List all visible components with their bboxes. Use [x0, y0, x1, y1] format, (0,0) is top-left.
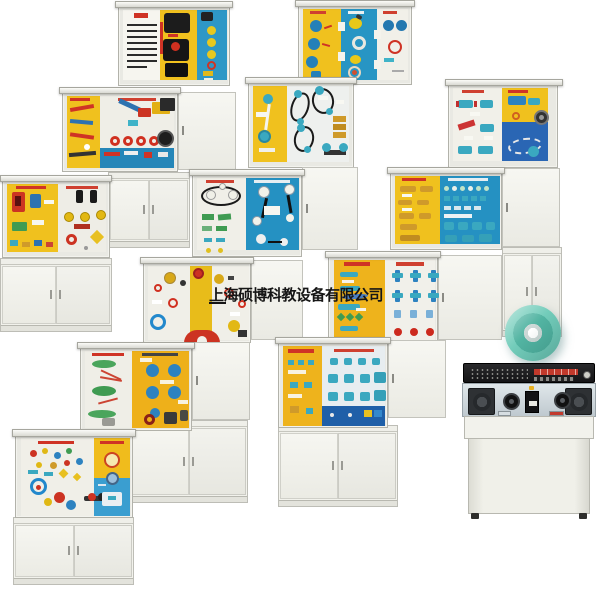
cab-1-sewing-machines-part — [207, 61, 216, 70]
cab-12-springs-cupboard-door-right — [189, 428, 246, 495]
cab-10-valves-part — [392, 293, 403, 298]
cab-12-springs-part — [102, 418, 115, 426]
cab-3-machine-tools-part — [70, 98, 90, 101]
cab-13-mixed-parts-part — [66, 448, 72, 454]
cab-8-pumps-part — [66, 234, 77, 245]
cab-3-machine-tools-part — [138, 108, 151, 117]
cab-11-clamps-cupboard-door-left — [280, 433, 338, 499]
cab-1-sewing-machines-part — [207, 38, 216, 47]
cab-8-pumps-part — [90, 190, 97, 203]
cab-13-mixed-parts-part — [36, 462, 42, 468]
cab-8-pumps-part — [15, 196, 21, 206]
cab-4-belt-drives-part — [333, 116, 346, 122]
cab-5-couplings-part — [480, 124, 494, 132]
cab-13-mixed-parts-cornice — [12, 429, 136, 437]
cab-13-mixed-parts-part — [54, 452, 61, 459]
cab-10-valves-part — [394, 328, 402, 336]
cab-9-gears-part — [238, 330, 247, 337]
cab-11-clamps-part — [330, 358, 338, 365]
cab-6-chain-drives-part — [254, 180, 290, 183]
cab-3-machine-tools-part — [84, 144, 90, 150]
cab-5-couplings-part — [478, 146, 493, 154]
cab-8-pumps-part — [46, 242, 53, 247]
cab-5-couplings-part — [512, 112, 520, 120]
cab-3-machine-tools-part — [158, 152, 168, 157]
cab-13-mixed-parts-part — [64, 460, 70, 466]
cab-7-fasteners-part — [452, 186, 457, 191]
control-panel — [462, 383, 596, 417]
cab-2-cams-part — [383, 11, 397, 14]
cab-8-pumps-part — [34, 240, 42, 246]
cab-13-mixed-parts-part — [54, 492, 65, 503]
cab-1-sewing-machines-part — [165, 63, 188, 77]
cab-11-clamps-part — [306, 408, 313, 414]
cab-11-clamps-part — [344, 358, 352, 365]
rack-knob — [583, 371, 591, 379]
cab-8-pumps-cupboard-handle — [50, 290, 52, 299]
cab-9-gears-part — [230, 312, 240, 316]
cab-3-machine-tools-part — [144, 152, 152, 158]
cab-1-sewing-machines-part — [127, 48, 157, 50]
cab-6-chain-drives-part — [204, 238, 212, 242]
cab-6-chain-drives-cornice — [189, 169, 305, 176]
cab-11-clamps-panel — [283, 346, 322, 426]
cab-9-gears-part — [154, 284, 162, 292]
cab-4-belt-drives-part — [315, 86, 324, 95]
cab-7-fasteners-part — [417, 200, 429, 205]
cab-8-pumps-cupboard-door-left — [2, 266, 56, 324]
console-top-band — [464, 416, 594, 439]
cab-4-belt-drives-part — [294, 90, 302, 98]
cab-12-springs-part — [88, 410, 116, 418]
cab-10-valves-part — [340, 326, 358, 331]
cab-7-fasteners-part — [484, 186, 489, 191]
cab-11-clamps-door-handle — [392, 374, 394, 383]
cab-4-belt-drives-part — [333, 124, 346, 130]
cab-13-mixed-parts-part — [98, 484, 106, 486]
cab-6-chain-drives-door — [302, 167, 358, 250]
cab-4-belt-drives-part — [304, 146, 311, 153]
cab-6-chain-drives-part — [252, 216, 262, 226]
cab-1-sewing-machines-part — [203, 71, 213, 76]
cab-7-fasteners-cornice — [387, 167, 505, 174]
cab-7-fasteners-cupboard-rail — [503, 248, 561, 254]
cab-7-fasteners-part — [444, 196, 450, 201]
cab-2-cams-part — [383, 20, 394, 31]
console-front-panel — [468, 438, 590, 514]
cab-3-machine-tools-cornice — [59, 87, 181, 94]
cab-9-gears-part — [152, 300, 162, 304]
cab-3-machine-tools-door — [178, 92, 236, 170]
cab-7-fasteners-door-handle — [506, 203, 508, 212]
cab-5-couplings-part — [508, 90, 528, 93]
cab-6-chain-drives-part — [218, 248, 223, 253]
cab-12-springs-part — [180, 410, 188, 421]
cab-13-mixed-parts-part — [28, 470, 38, 474]
cab-12-springs-cupboard-door-left — [132, 428, 189, 495]
cab-12-springs-part — [178, 400, 188, 404]
cab-11-clamps-part — [288, 349, 314, 353]
cab-10-valves-part — [426, 310, 433, 318]
cd-shine — [505, 305, 561, 361]
cab-2-cams-part — [306, 56, 318, 68]
cab-5-couplings-part — [528, 146, 539, 157]
cab-5-couplings-cornice — [445, 79, 563, 86]
cab-9-gears-part — [228, 276, 234, 280]
cab-11-clamps-part — [344, 392, 354, 401]
cab-11-clamps-part — [344, 374, 354, 383]
cab-11-clamps-cornice — [275, 337, 391, 344]
cab-11-clamps-part — [348, 413, 352, 417]
cab-10-valves-door-handle — [442, 293, 444, 302]
cab-7-fasteners-part — [444, 214, 472, 218]
cab-7-fasteners-cupboard-handle — [535, 287, 537, 296]
cab-10-valves-part — [342, 280, 354, 283]
cab-11-clamps-cupboard-kick — [279, 500, 397, 506]
cab-11-clamps-part — [288, 360, 294, 365]
left-speaker — [468, 388, 495, 415]
cab-13-mixed-parts-part — [30, 450, 37, 457]
cab-13-mixed-parts-cupboard-handle — [68, 546, 70, 555]
cab-1-sewing-machines-panel — [123, 10, 160, 80]
cab-12-springs-part — [160, 380, 174, 384]
product-montage: 上海硕博科教设备有限公司 — [0, 0, 600, 591]
cab-13-mixed-parts-part — [44, 498, 52, 506]
cab-2-cams-part — [338, 52, 345, 61]
cab-10-valves-part — [394, 310, 401, 318]
cab-3-machine-tools-part — [157, 130, 174, 147]
cab-7-fasteners-part — [444, 206, 451, 210]
cab-3-machine-tools-door-handle — [182, 126, 184, 135]
cab-10-valves-part — [410, 328, 418, 336]
cab-2-cams-part — [352, 70, 357, 75]
cab-3-machine-tools-part — [136, 136, 146, 146]
cab-5-couplings-part — [480, 100, 493, 108]
cab-1-sewing-machines-part — [160, 22, 163, 54]
cab-12-springs-cornice — [77, 342, 195, 349]
cab-4-belt-drives-part — [256, 112, 268, 117]
cab-5-couplings-part — [528, 98, 540, 105]
cab-7-fasteners-part — [468, 186, 473, 191]
cab-3-machine-tools-part — [160, 98, 175, 111]
cab-11-clamps-part — [330, 413, 334, 417]
cab-5-couplings-part — [539, 115, 544, 120]
cab-6-chain-drives-part — [216, 238, 225, 242]
module-window — [529, 401, 537, 406]
cab-1-sewing-machines-part — [127, 66, 147, 68]
cab-11-clamps-door — [388, 340, 446, 418]
cab-8-pumps-part — [30, 194, 41, 208]
cab-7-fasteners-part — [460, 186, 465, 191]
cab-8-pumps-cupboard-door-right — [56, 266, 110, 324]
cab-11-clamps-part — [288, 370, 306, 374]
cab-1-sewing-machines-part — [127, 60, 157, 62]
cab-9-gears-part — [168, 298, 178, 308]
cab-7-fasteners-part — [471, 196, 477, 201]
cab-4-belt-drives-part — [333, 132, 346, 138]
cab-7-fasteners-part — [402, 194, 412, 197]
cab-7-fasteners-part — [479, 234, 492, 242]
cab-7-fasteners-part — [486, 222, 495, 230]
cab-2-cams-cornice — [295, 0, 415, 7]
cab-2-cams-part — [384, 58, 394, 62]
cab-3-machine-tools-part — [104, 152, 120, 156]
rack-indicator-lights — [470, 368, 528, 380]
cab-12-springs-part — [168, 364, 181, 377]
cab-12-springs-part — [92, 386, 116, 396]
cab-7-fasteners-part — [454, 206, 461, 210]
cab-4-belt-drives-part — [259, 148, 275, 152]
cab-5-couplings-part — [462, 90, 484, 93]
cab-1-sewing-machines-part — [164, 13, 190, 33]
cab-11-clamps-part — [374, 390, 386, 401]
cab-7-fasteners-part — [400, 224, 417, 230]
cab-11-clamps-part — [364, 410, 372, 417]
cab-11-clamps-part — [334, 349, 374, 352]
cab-1-sewing-machines-part — [201, 12, 213, 21]
cab-6-chain-drives-door-handle — [306, 204, 308, 213]
cab-4-belt-drives-part — [258, 130, 271, 143]
cab-11-clamps-part — [288, 394, 302, 398]
cab-7-fasteners-part — [399, 213, 414, 219]
center-module — [525, 391, 539, 413]
cab-11-clamps-part — [308, 360, 314, 365]
cab-13-mixed-parts-cupboard-door-right — [74, 525, 133, 577]
cab-12-springs-cupboard-handle — [183, 457, 185, 466]
console-foot — [471, 513, 479, 519]
cab-10-valves-part — [428, 273, 439, 278]
cab-7-fasteners-part — [400, 235, 420, 241]
cab-11-clamps-part — [304, 382, 312, 388]
cab-2-cams-part — [388, 40, 402, 54]
cab-2-cams-part — [310, 20, 322, 32]
dial-cap — [560, 398, 565, 403]
cab-13-mixed-parts-cupboard-rail — [14, 518, 133, 524]
cab-12-springs-part — [144, 414, 155, 425]
cab-3-machine-tools-part — [124, 151, 138, 155]
cab-8-pumps-part — [66, 186, 98, 189]
cab-10-valves-part — [344, 262, 370, 266]
cab-1-sewing-machines-part — [127, 54, 157, 56]
console-foot — [579, 513, 587, 519]
cab-6-chain-drives-part — [219, 183, 226, 190]
cab-5-couplings-part — [458, 100, 473, 108]
cab-3-machine-tools-part — [110, 136, 120, 146]
cab-11-clamps-part — [290, 382, 298, 388]
cab-10-valves-part — [356, 308, 366, 311]
cab-13-mixed-parts-cupboard-door-left — [15, 525, 74, 577]
cab-13-mixed-parts-part — [106, 472, 119, 485]
cab-11-clamps-part — [290, 406, 299, 413]
cab-10-valves-part — [396, 262, 424, 266]
cab-1-sewing-machines-part — [171, 42, 180, 51]
cab-2-cams-part — [308, 38, 320, 50]
cab-7-fasteners-part — [458, 222, 468, 230]
cab-12-springs-part — [140, 358, 152, 362]
cab-7-fasteners-part — [464, 206, 471, 210]
cab-11-clamps-part — [328, 374, 338, 383]
cab-8-pumps-part — [80, 212, 90, 222]
cab-7-fasteners-part — [462, 196, 468, 201]
cab-12-springs-part — [146, 364, 159, 377]
cab-11-clamps-part — [374, 410, 382, 417]
cab-10-valves-door — [438, 255, 502, 340]
cab-8-pumps-part — [32, 220, 44, 225]
cab-6-chain-drives-part — [264, 206, 280, 215]
cab-10-valves-part — [410, 310, 417, 318]
cab-11-clamps-part — [360, 374, 370, 383]
cab-10-valves-part — [410, 293, 421, 298]
cab-5-couplings-part — [484, 136, 493, 140]
cab-8-pumps-cupboard-handle — [59, 290, 61, 299]
dial-cap — [509, 399, 514, 404]
cab-13-mixed-parts-part — [38, 441, 74, 444]
cab-1-sewing-machines-part — [127, 42, 157, 44]
cab-10-valves-cornice — [325, 251, 441, 258]
rack-buttons — [534, 377, 574, 381]
left-dial — [503, 393, 520, 410]
cab-8-pumps-part — [84, 246, 88, 250]
cab-2-cams-part — [374, 30, 381, 39]
cab-7-fasteners-part — [445, 235, 457, 242]
cab-6-chain-drives-part — [206, 190, 216, 200]
cab-7-fasteners-part — [402, 178, 426, 181]
cab-3-machine-tools-cupboard-handle — [152, 205, 154, 214]
cab-3-machine-tools-part — [123, 136, 133, 146]
cab-12-springs-part — [142, 353, 178, 356]
cab-3-machine-tools-cupboard-door-right — [149, 180, 188, 240]
cab-7-fasteners-part — [448, 178, 488, 181]
cab-6-chain-drives-part — [228, 190, 238, 200]
cab-6-chain-drives-part — [218, 213, 231, 220]
cab-8-pumps-part — [10, 240, 18, 246]
cd-disc — [505, 305, 561, 361]
cab-7-fasteners-part — [444, 222, 454, 230]
cab-5-couplings-part — [458, 146, 472, 154]
cab-4-belt-drives-cornice — [245, 77, 357, 84]
cab-2-cams-part — [350, 55, 361, 64]
cab-5-couplings-part — [470, 112, 480, 116]
cab-11-clamps-cupboard-handle — [341, 461, 343, 470]
cab-7-fasteners-part — [398, 200, 412, 205]
cab-9-gears-cornice — [140, 257, 254, 264]
cab-1-sewing-machines-part — [204, 78, 213, 80]
cab-13-mixed-parts-part — [88, 493, 96, 501]
watermark-underline — [209, 302, 226, 304]
cab-8-pumps-part — [74, 224, 90, 229]
cab-12-springs-cupboard-handle — [192, 457, 194, 466]
cab-6-chain-drives-part — [216, 226, 227, 231]
speaker-grille — [570, 393, 588, 411]
cab-8-pumps-part — [12, 222, 27, 231]
cab-6-chain-drives-part — [258, 186, 270, 198]
cab-13-mixed-parts-part — [42, 448, 48, 454]
cab-10-valves-part — [410, 273, 421, 278]
cab-7-fasteners-part — [420, 186, 433, 192]
cab-12-springs-part — [168, 386, 181, 399]
cab-3-machine-tools-part — [128, 120, 138, 126]
cab-9-gears-part — [193, 268, 204, 279]
cab-12-springs-door-handle — [196, 376, 198, 385]
cab-3-machine-tools-cupboard-kick — [109, 241, 189, 247]
cab-9-gears-part — [164, 272, 176, 284]
cab-13-mixed-parts-part — [100, 441, 124, 444]
cab-1-sewing-machines-part — [207, 26, 216, 35]
cab-8-pumps-part — [16, 186, 46, 189]
cab-10-valves-part — [426, 328, 434, 336]
cab-8-pumps-cornice — [0, 175, 112, 182]
cab-8-pumps-part — [76, 190, 83, 203]
cab-4-belt-drives-part — [318, 96, 328, 100]
cab-2-cams-part — [352, 36, 366, 50]
cab-7-fasteners-door — [502, 168, 560, 247]
cab-13-mixed-parts-part — [50, 462, 57, 469]
cab-2-cams-part — [338, 22, 345, 31]
cab-4-belt-drives-part — [297, 124, 305, 132]
cab-11-clamps-cupboard-handle — [332, 461, 334, 470]
cab-11-clamps-part — [298, 360, 304, 365]
cab-6-chain-drives-part — [284, 184, 295, 195]
cab-6-chain-drives-part — [202, 214, 214, 220]
cab-10-valves-part — [428, 293, 439, 298]
cab-13-mixed-parts-part — [76, 458, 83, 465]
cab-11-clamps-part — [328, 392, 338, 401]
cab-1-sewing-machines-part — [127, 36, 157, 38]
cab-6-chain-drives-part — [268, 241, 282, 243]
cab-12-springs-part — [92, 353, 124, 356]
cab-13-mixed-parts-part — [108, 496, 116, 500]
cab-6-chain-drives-part — [206, 248, 211, 253]
audio-rack — [463, 363, 595, 383]
cab-8-pumps-part — [64, 212, 74, 222]
cab-4-belt-drives-part — [263, 94, 273, 104]
cab-8-pumps-cupboard-kick — [1, 325, 111, 331]
speaker-grille — [473, 393, 491, 411]
cab-8-pumps-part — [44, 200, 54, 204]
cab-13-mixed-parts-part — [44, 472, 53, 476]
cab-4-belt-drives-part — [339, 143, 348, 152]
right-dial — [554, 392, 571, 409]
cab-10-valves-part — [340, 272, 358, 277]
cab-6-chain-drives-part — [202, 226, 212, 231]
cab-1-sewing-machines-part — [127, 30, 157, 32]
cab-10-valves-part — [392, 273, 403, 278]
control-console — [460, 362, 598, 520]
cab-7-fasteners-part — [462, 235, 474, 242]
cab-2-cams-part — [374, 60, 381, 69]
cab-7-fasteners-part — [480, 196, 486, 201]
cab-9-gears-part — [214, 274, 224, 284]
cab-13-mixed-parts-cupboard-kick — [14, 578, 133, 584]
cab-7-fasteners-part — [402, 208, 412, 211]
cab-13-mixed-parts-cupboard-handle — [77, 546, 79, 555]
cab-12-springs-part — [164, 412, 177, 424]
cab-7-fasteners-part — [476, 186, 481, 191]
cab-7-fasteners-part — [444, 186, 449, 191]
cab-3-machine-tools-cupboard-handle — [143, 205, 145, 214]
cab-4-belt-drives-part — [322, 143, 331, 152]
cab-3-machine-tools-cupboard-rail — [109, 173, 189, 179]
cab-1-sewing-machines-part — [127, 24, 157, 26]
cab-13-mixed-parts-part — [36, 485, 41, 490]
cab-1-sewing-machines-cornice — [115, 1, 233, 8]
cab-13-mixed-parts-part — [104, 452, 120, 468]
cab-6-chain-drives-part — [286, 214, 294, 222]
cab-1-sewing-machines-part — [168, 34, 178, 37]
rack-display — [534, 369, 578, 375]
cab-8-pumps-part — [22, 242, 30, 247]
cab-11-clamps-part — [360, 392, 370, 401]
